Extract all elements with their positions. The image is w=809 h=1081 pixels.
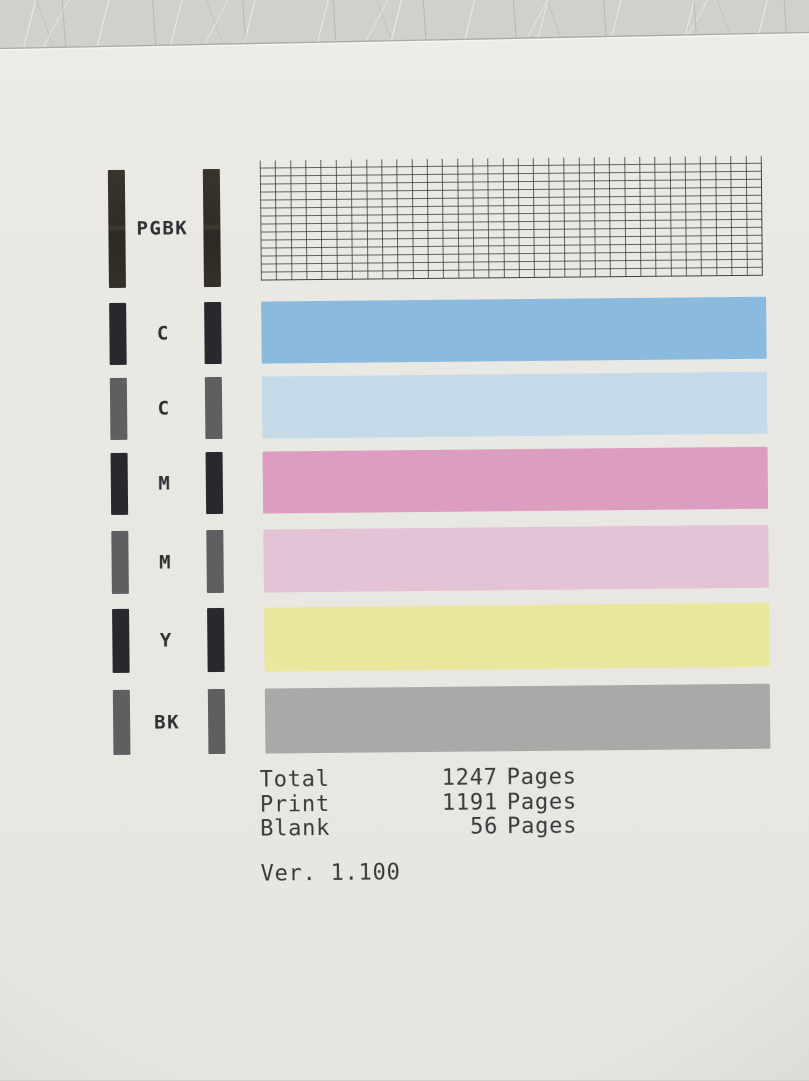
- ink-bar-light-magenta: [263, 525, 769, 593]
- ink-channel-label: C: [126, 397, 202, 420]
- ink-bar-yellow: [264, 603, 770, 672]
- registration-mark: [203, 169, 221, 287]
- registration-mark: [205, 377, 223, 439]
- stat-value: 56: [440, 815, 498, 840]
- nozzle-check-row-yellow: Y: [1, 602, 809, 674]
- nozzle-check-row-magenta: M: [0, 446, 809, 516]
- ink-bar-light-cyan: [262, 372, 768, 439]
- stat-value: 1247: [440, 766, 498, 791]
- ink-bar-cyan: [261, 297, 767, 364]
- ink-channel-label: BK: [129, 711, 205, 734]
- registration-mark: [207, 608, 225, 672]
- stat-value: 1191: [440, 791, 498, 816]
- ink-bar-magenta: [263, 447, 769, 514]
- nozzle-check-row-light-cyan: C: [0, 371, 808, 441]
- registration-mark: [111, 453, 129, 515]
- registration-mark: [111, 531, 129, 594]
- nozzle-check-row-light-magenta: M: [0, 524, 809, 595]
- stat-label: Print: [260, 791, 440, 817]
- registration-mark: [206, 452, 224, 514]
- nozzle-check-grid: [260, 163, 763, 281]
- registration-mark: [206, 530, 224, 593]
- ink-channel-label: M: [127, 551, 203, 574]
- ink-bar-black: [265, 684, 771, 754]
- ink-channel-label: Y: [128, 629, 204, 652]
- page-counter-block: Total1247Pages Print1191Pages Blank56Pag…: [260, 766, 578, 843]
- ink-channel-label: PGBK: [124, 217, 200, 240]
- stat-row-total: Total1247Pages: [260, 766, 577, 794]
- stat-label: Blank: [260, 816, 440, 842]
- stat-row-blank: Blank56Pages: [260, 815, 577, 843]
- stat-label: Total: [260, 767, 440, 793]
- nozzle-check-row-black: BK: [2, 683, 809, 756]
- ink-channel-label: M: [127, 472, 203, 495]
- registration-mark: [110, 378, 128, 440]
- stat-unit: Pages: [507, 766, 577, 791]
- registration-mark: [113, 690, 131, 755]
- registration-mark: [109, 303, 127, 365]
- firmware-version-label: Ver. 1.100: [260, 860, 400, 886]
- registration-mark: [204, 302, 222, 364]
- stat-unit: Pages: [507, 790, 577, 815]
- registration-mark: [112, 609, 130, 673]
- test-print-sheet: PGBK C C M M: [0, 0, 809, 1080]
- printed-content: PGBK C C M M: [0, 0, 809, 1081]
- registration-mark: [208, 689, 226, 754]
- nozzle-check-row-cyan: C: [0, 296, 808, 366]
- stat-unit: Pages: [507, 815, 577, 840]
- registration-mark: [108, 170, 126, 288]
- nozzle-check-row-pgbk: PGBK: [0, 163, 807, 289]
- ink-channel-label: C: [125, 322, 201, 345]
